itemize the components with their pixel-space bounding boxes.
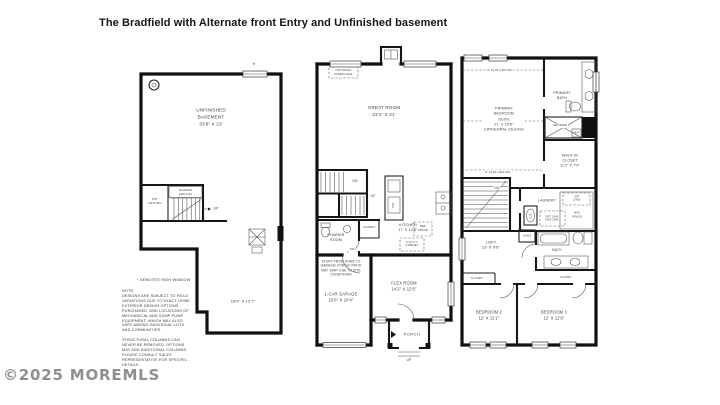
- window: [243, 71, 267, 77]
- mechanical-equipment-icon: [249, 229, 265, 253]
- shower-label: SHOWER: [552, 124, 568, 128]
- second-floor-dn-label: DN: [493, 186, 500, 190]
- bedroom-3-label: BEDROOM 3 12' X 11'9": [541, 309, 567, 320]
- floor-plan-sheet: The Bradfield with Alternate front Entry…: [0, 0, 720, 405]
- laundry-label: LAUNDRY: [538, 199, 556, 204]
- sink-icon: [343, 225, 350, 232]
- great-room-label: GREAT ROOM 23'1" X 21': [368, 105, 400, 119]
- mls-watermark: ©2025 MOREMLS: [3, 366, 160, 384]
- first-floor-dn-label: DN: [351, 179, 358, 183]
- primary-suite-label: PRIMARY BEDROOM SUITE 21' X 15'6" CATHED…: [483, 107, 525, 134]
- dishwasher-label: DW: [392, 203, 396, 208]
- first-floor-closet-label: CLOSET: [363, 226, 375, 230]
- shower-seat-label: SEAT: [573, 131, 580, 134]
- up-arrow-icon: [208, 208, 211, 211]
- wd-space-label: W/D SPACE: [572, 211, 582, 218]
- closet-right-label: CLOSET: [560, 276, 572, 280]
- basement-up-label: UP: [213, 207, 218, 212]
- bath-vanity-icon: [544, 256, 588, 268]
- high-window-asterisk: *: [253, 62, 256, 70]
- floor-plan-drawing: [0, 0, 720, 405]
- garage-door-dn-label: DN: [349, 248, 355, 252]
- ref-space-label: REF SPACE: [418, 225, 428, 233]
- flex-room-label: FLEX ROOM 14'2" X 12'6": [391, 280, 416, 291]
- laundry-tub-label: TUB: [529, 213, 532, 218]
- garage-label: 1-CAR GARAGE 23'6" X 10'4": [325, 291, 358, 302]
- first-floor-up-label: UP: [371, 194, 376, 198]
- toilet-icon: [573, 232, 592, 244]
- door-arrow-icon: [391, 331, 396, 338]
- window: [375, 317, 445, 323]
- sump-pump-icon: [149, 80, 159, 90]
- primary-bath-label: PRIMARY BATH: [553, 91, 570, 101]
- first-floor-plan: [317, 47, 454, 356]
- bath-label: BATH: [552, 248, 561, 252]
- basement-room-label: UNFINISHED BASEMENT 33'9" X 23': [196, 106, 226, 127]
- powder-room-label: POWDER ROOM: [327, 233, 344, 243]
- porch-walls: [388, 320, 431, 356]
- bathtub-icon: [538, 232, 569, 245]
- high-window-note: * DENOTES HIGH WINDOW: [137, 277, 191, 282]
- optional-fireplace-label: OPTIONAL FIREPLACE: [334, 68, 352, 76]
- opt-sink-label: OPT SINK AND CABS: [545, 216, 559, 223]
- walk-in-closet-label: WALK-IN CLOSET 11'2" X 7'4": [560, 154, 580, 169]
- porch-label: PORCH: [404, 332, 421, 337]
- fireplace-chase: [381, 47, 401, 64]
- flat-ceiling-top-label: 8' FLAT CEILING: [486, 68, 513, 72]
- field-note: NOTE: DESIGNS ARE SUBJECT TO FIELD VARIA…: [122, 289, 190, 368]
- plan-title: The Bradfield with Alternate front Entry…: [99, 17, 447, 29]
- linen-label: LINEN: [523, 234, 531, 237]
- second-floor-stairs: [464, 181, 508, 228]
- utility-cabinet-label: UTILITY CABINET: [405, 241, 418, 249]
- closet-left-label: CLOSET: [471, 277, 483, 281]
- opt-cabs-label: OPT CABS: [573, 196, 580, 203]
- kitchen-label: KITCHEN 17' X 12'6": [398, 223, 418, 233]
- bedroom-2-label: BEDROOM 2 12' X 11'1": [476, 309, 502, 320]
- kitchen-island: [385, 176, 403, 220]
- loft-label: LOFT 13' X 9'6": [482, 240, 500, 251]
- basement-lower-dim-label: 18'6" X 12'7": [231, 298, 256, 303]
- porch-up-label: UP: [407, 358, 412, 362]
- steps-note: STEPS FROM HOME TO GARAGE/ PORCH/ PATIO …: [321, 259, 362, 276]
- ceiling-height-label: 8'8" CEILING: [148, 197, 161, 205]
- garage-door: [323, 343, 366, 348]
- sloped-ceiling-label: SLOPED CEILING: [179, 188, 192, 196]
- flat-ceiling-mid-label: 8' FLAT CEILING: [484, 170, 511, 174]
- refrigerator-icon: [436, 192, 451, 214]
- toilet-icon: [566, 101, 581, 112]
